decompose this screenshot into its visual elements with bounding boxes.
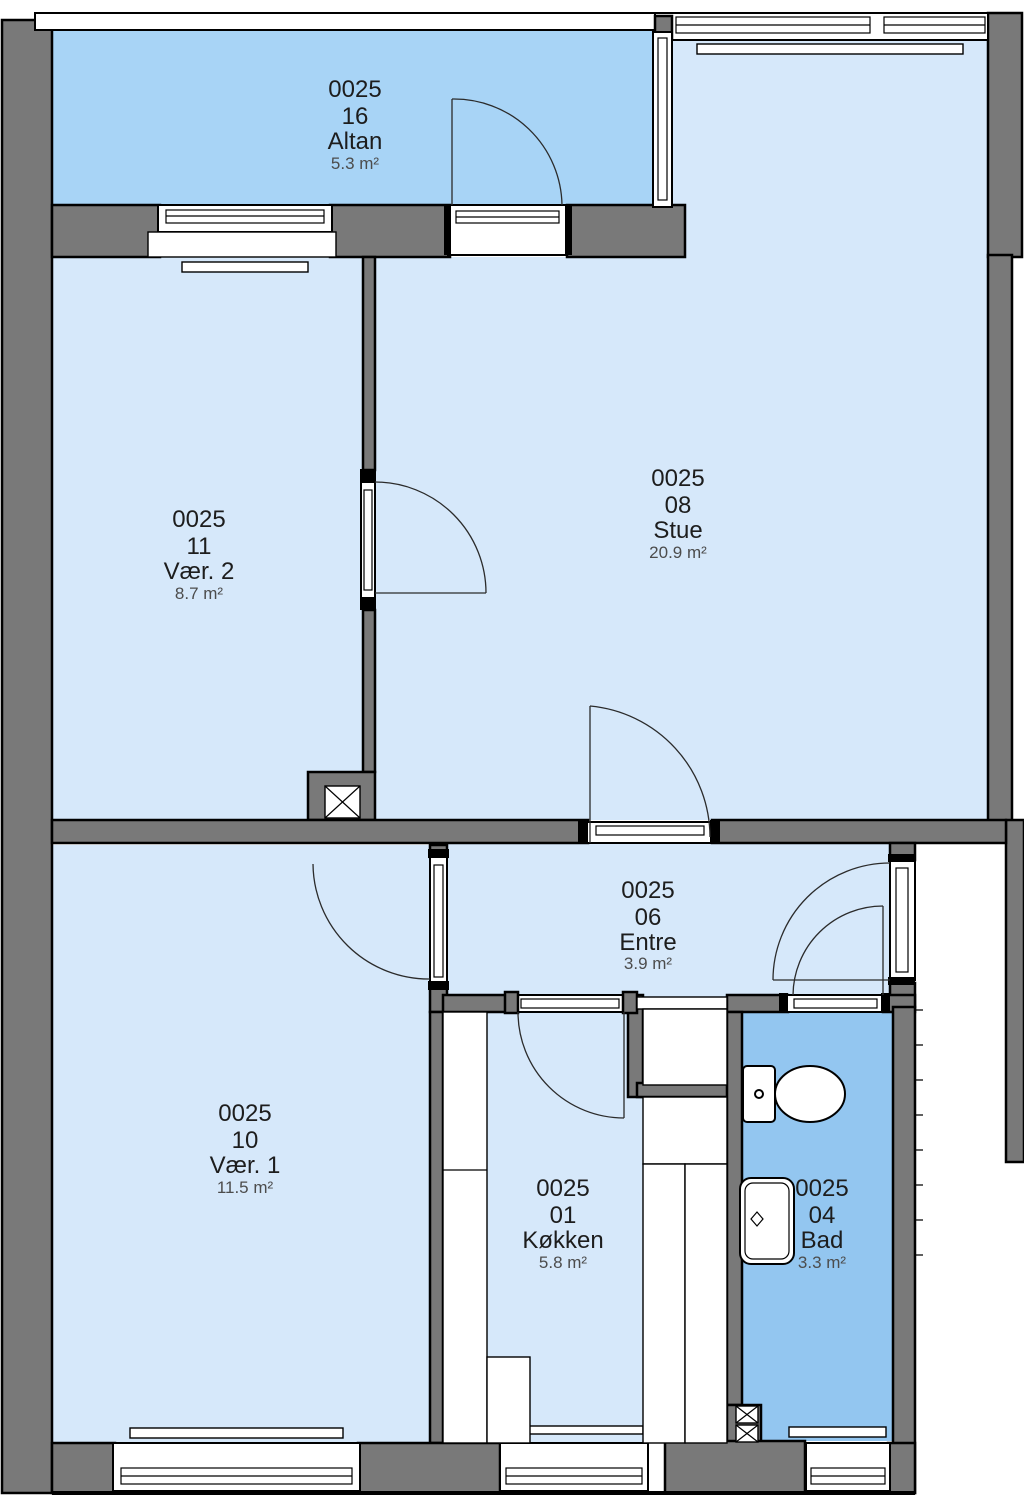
radiator-vaer1 (130, 1428, 343, 1438)
wall-bad-top-left (727, 995, 788, 1012)
room-number: 11 (187, 533, 212, 560)
wall-bottom-pier-c (665, 1441, 805, 1493)
closet-interior (643, 1009, 727, 1085)
wall-vaer2-stue-b (363, 610, 375, 772)
toilet-icon (743, 1066, 845, 1122)
vaer1-door-frame (430, 857, 447, 985)
vaer2-altan-window-sill (148, 232, 336, 257)
room-number: 16 (342, 103, 369, 130)
room-id: 0025 (795, 1175, 848, 1202)
vaer2-altan-window (158, 205, 332, 232)
room-id: 0025 (218, 1100, 271, 1127)
sink-icon (740, 1178, 794, 1264)
room-id: 0025 (621, 877, 674, 904)
room-number: 06 (635, 904, 662, 931)
balcony-door-jamb-left (444, 205, 451, 255)
stue-door-cap-right (710, 820, 720, 843)
wall-top-right (988, 13, 1022, 257)
wall-bottom-pier-d (888, 1443, 915, 1493)
entry-door-cap-top (888, 854, 915, 862)
wall-altan-pier-a (52, 205, 160, 257)
balcony-door-threshold (448, 205, 567, 255)
vaer2-door-cap-top (360, 469, 376, 482)
wall-bad-right (893, 1007, 915, 1493)
cabinet-tall-left (643, 1164, 685, 1443)
room-name: Bad (801, 1227, 844, 1254)
altan-stue-window (653, 32, 672, 207)
stue-door-cap-left (578, 820, 588, 843)
balcony-railing (35, 13, 655, 30)
koekken-door-hinge-right (623, 992, 637, 1013)
radiator-stue (697, 44, 963, 54)
room-name: Stue (653, 517, 702, 544)
room-name: Altan (328, 128, 383, 155)
koekken-door-hinge-left (505, 992, 518, 1013)
room-area: 5.3 m² (331, 154, 380, 173)
room-number: 08 (665, 492, 692, 519)
koekken-door-frame (513, 995, 627, 1012)
room-name: Entre (619, 929, 676, 956)
wall-altan-pier-c (567, 205, 685, 257)
wall-right-upper (988, 255, 1012, 822)
cabinet-top (643, 1097, 727, 1164)
koekken-counter-left (443, 1012, 487, 1443)
wall-koekken-left (430, 1012, 443, 1443)
room-name: Vær. 2 (164, 558, 235, 585)
room-id: 0025 (651, 465, 704, 492)
room-area: 3.3 m² (798, 1253, 847, 1272)
wall-altan-pier-b (330, 205, 450, 257)
room-area: 3.9 m² (624, 954, 673, 973)
vaer2-door-frame (361, 482, 375, 598)
floor-plan-canvas: 0025 16 Altan 5.3 m² 0025 11 Vær. 2 8.7 … (0, 0, 1024, 1501)
room-name: Køkken (522, 1227, 603, 1254)
floor-plan: 0025 16 Altan 5.3 m² 0025 11 Vær. 2 8.7 … (0, 0, 1024, 1501)
wall-bottom-pier-b (358, 1443, 500, 1493)
room-floor-entre (447, 843, 890, 1007)
balcony-door-jamb-right (565, 205, 572, 255)
wall-vaer2-stue-a (363, 257, 375, 470)
shaft-box-bad-2 (736, 1425, 758, 1442)
vaer2-door-cap-bottom (360, 597, 376, 610)
wall-right-lower (1006, 820, 1024, 1162)
koekken-counter-corner (487, 1357, 530, 1443)
bad-door-frame (786, 995, 885, 1012)
room-id: 0025 (328, 76, 381, 103)
wall-left-outer (2, 20, 52, 1493)
radiator-bad (789, 1427, 886, 1437)
room-area: 5.8 m² (539, 1253, 588, 1272)
entry-door-frame (890, 860, 915, 980)
wall-bottom-pier-a (52, 1443, 115, 1493)
wall-main-horizontal-left (52, 820, 588, 843)
shaft-box-bad-1 (736, 1406, 758, 1423)
room-id: 0025 (172, 506, 225, 533)
room-area: 8.7 m² (175, 584, 224, 603)
room-name: Vær. 1 (210, 1152, 281, 1179)
stue-door-threshold (586, 822, 714, 843)
bad-door-cap-right (881, 993, 890, 1013)
shaft-box-vaer2 (325, 786, 360, 818)
entry-door-cap-bottom (888, 977, 915, 985)
vaer1-door-cap-bottom (428, 981, 449, 990)
vaer1-door-cap-top (428, 849, 449, 858)
room-area: 20.9 m² (649, 543, 707, 562)
wall-main-horizontal-right (712, 820, 1006, 843)
room-id: 0025 (536, 1175, 589, 1202)
room-number: 04 (809, 1202, 836, 1229)
radiator-vaer2 (182, 262, 308, 272)
bad-door-cap-left (779, 993, 788, 1013)
room-area: 11.5 m² (217, 1178, 274, 1197)
closet-door (637, 997, 727, 1009)
room-number: 01 (550, 1202, 577, 1229)
cabinet-tall-right (685, 1164, 727, 1443)
room-number: 10 (232, 1127, 259, 1154)
